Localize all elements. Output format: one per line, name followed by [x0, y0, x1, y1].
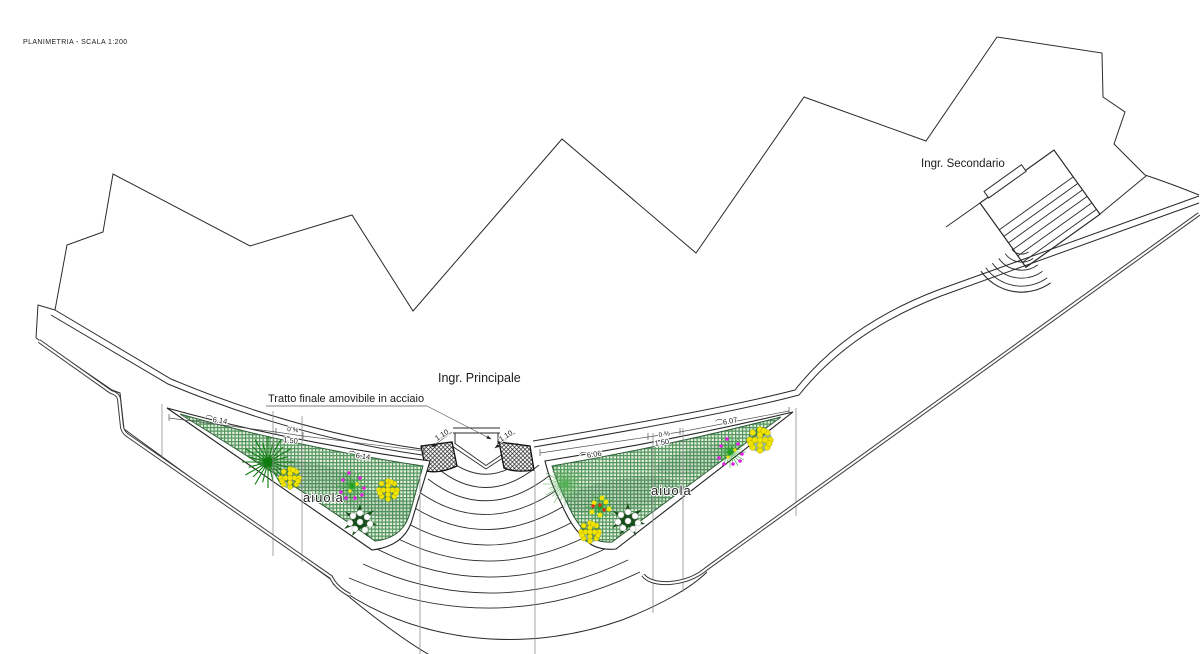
dim-left-slope: 0 % [287, 426, 299, 434]
yellow-flowers-icon [747, 427, 774, 454]
walkway-top-edge-right [533, 196, 1199, 441]
site-plan-sheet: PLANIMETRIA - SCALA 1:200 [0, 0, 1200, 654]
flowerbed-left-label: aiuola [303, 490, 344, 505]
yellow-flowers-icon [278, 466, 301, 489]
railing-right [643, 214, 1199, 583]
site-plan-drawing: PLANIMETRIA - SCALA 1:200 [0, 0, 1200, 654]
dim-left-strip: 1.50 [283, 435, 299, 446]
main-entrance-landing [453, 428, 500, 444]
yellow-flowers-icon [578, 520, 601, 543]
dim-steel-right: 1.10 [497, 428, 514, 444]
steel-plate-right [499, 442, 534, 471]
main-entrance-label: Ingr. Principale [438, 371, 521, 385]
flowerbed-right-label: aiuola [651, 483, 692, 498]
yellow-flowers-icon [376, 478, 399, 501]
steel-note-label: Tratto finale amovibile in acciaio [268, 393, 424, 405]
secondary-entrance-label: Ingr. Secondario [921, 158, 1005, 170]
steel-removable-plates [421, 442, 534, 472]
sheet-title: PLANIMETRIA - SCALA 1:200 [23, 39, 128, 46]
dim-steel-left: 1.10 [433, 427, 450, 443]
